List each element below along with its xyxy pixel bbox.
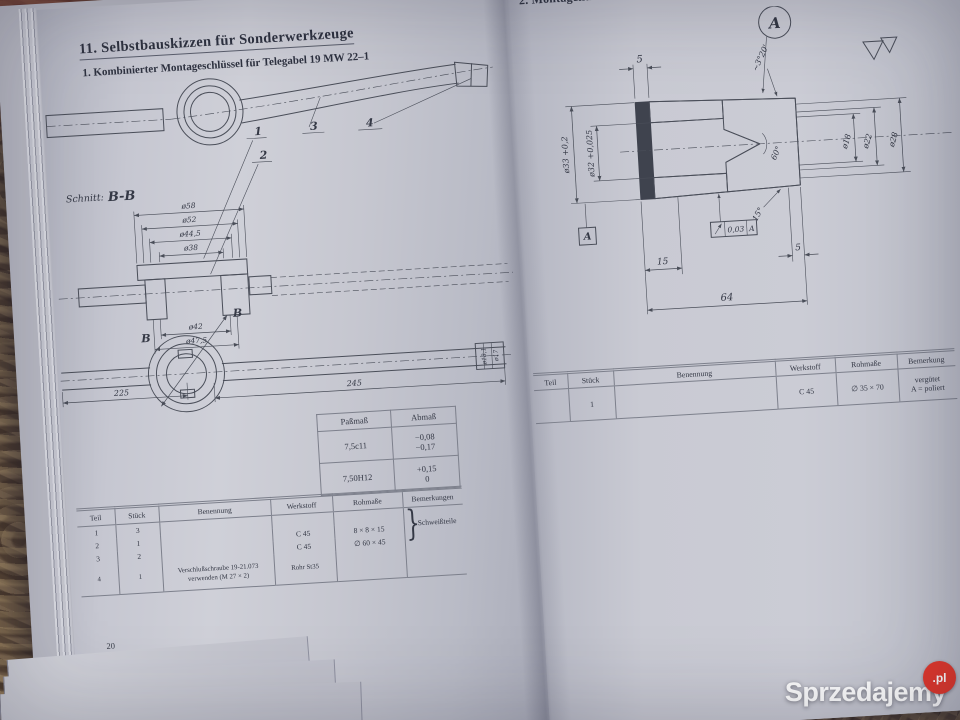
sleeve-section-view [617, 84, 954, 201]
cell-teil: 4 [80, 564, 120, 597]
right-page: 2. Montagehülse für Radialdichtring 19 M… [505, 0, 960, 720]
ab-lower: −0,17 [395, 439, 455, 453]
cell-stueck: 1 [118, 562, 164, 595]
callout-1: 1 [254, 125, 262, 138]
datum-box-label: A [582, 231, 592, 243]
section-label: Schnitt: [66, 192, 105, 205]
runout-datum-ref: A [748, 224, 756, 233]
cell-benennung: Verschlußschraube 19-21.073 verwenden (M… [162, 555, 276, 592]
section-marker-b-left: B [140, 332, 151, 346]
cell-stueck: 1 [568, 386, 616, 422]
cell-rohmasse: ∅ 35 × 70 [836, 369, 900, 406]
dim-end-dia-2: ø17 [493, 349, 501, 362]
dim-end-dia: ø18,1 [480, 347, 488, 365]
dim-d44-5: ø44,5 [178, 229, 201, 239]
dim-d38: ø38 [183, 243, 199, 253]
wrench-bottom-view: B B ø18,1 ø17 225 245 [57, 290, 515, 419]
watermark-badge: .pl [923, 661, 956, 694]
cell-werkstoff: Rohr St35 [273, 551, 337, 585]
dim-len-64: 64 [720, 292, 733, 304]
cell-rohmasse [335, 547, 407, 582]
datum-symbols: A 0,03 A [577, 192, 757, 245]
dim-top-width: 5 [636, 54, 643, 65]
fit-pass-value: 7,5c11 [318, 427, 394, 463]
callout-2: 2 [258, 149, 268, 163]
section-marker-b-top: B [232, 306, 243, 320]
page-number: 20 [106, 640, 115, 650]
dim-len-left: 225 [113, 388, 130, 398]
dim-taper-angle: ~3°20' [751, 43, 771, 72]
fit-tolerance-table: Paßmaß Abmaß 7,5c11 −0,08 −0,17 7,50H12 [316, 406, 461, 496]
watermark-tld-text: .pl [933, 671, 947, 685]
dim-d32: ø32 +0,025 [585, 130, 597, 179]
bemerkung-line-2: A = poliert [901, 382, 955, 394]
parts-table-left: Teil Stück Benennung Werkstoff Rohmaße B… [76, 486, 467, 598]
left-technical-drawing: 1 2 3 4 Schnitt: B-B [41, 58, 532, 445]
dim-d42: ø42 [187, 322, 203, 332]
photo-background: 11. Selbstbauskizzen für Sonderwerkzeuge… [0, 0, 960, 720]
dim-len-5: 5 [795, 243, 802, 253]
callout-4: 4 [366, 116, 374, 129]
sleeve-dimensions: 5 ø33 +0,2 ø32 +0,025 ~3°20' 60° 15° [555, 35, 918, 319]
dim-d18: ø18 [840, 133, 853, 151]
dim-len-right: 245 [345, 378, 362, 388]
watermark: Sprzedajemy .pl [785, 677, 946, 708]
dim-d28: ø28 [887, 131, 900, 149]
runout-value: 0,03 [727, 224, 744, 234]
dim-d33: ø33 +0,2 [560, 136, 571, 174]
section-view-b-b: Schnitt: B-B ø58 ø52 ø44,5 ø38 [53, 166, 517, 359]
detail-label: A [766, 14, 781, 33]
dim-len-15: 15 [657, 257, 669, 268]
cell-bemerkung: vergütet A = poliert [897, 366, 957, 402]
fit-ab-value: −0,08 −0,17 [392, 423, 458, 459]
dim-d22: ø22 [861, 133, 874, 151]
section-name: B-B [106, 188, 135, 205]
item-title-right: 2. Montagehülse für Radialdichtring 19 M… [518, 0, 777, 8]
left-page: 11. Selbstbauskizzen für Sonderwerkzeuge… [37, 0, 551, 720]
dim-d58: ø58 [180, 201, 196, 211]
dim-d52: ø52 [181, 215, 197, 225]
right-technical-drawing: A [512, 0, 960, 366]
dim-cone-angle: 60° [769, 145, 783, 162]
cell-werkstoff: C 45 [776, 373, 838, 410]
open-book: 11. Selbstbauskizzen für Sonderwerkzeuge… [0, 0, 960, 720]
watermark-brand-text: Sprzedajemy [785, 677, 946, 707]
part-callouts: 1 2 3 4 [194, 78, 482, 274]
cell-bemerkung [405, 544, 467, 578]
ab-lower: 0 [397, 471, 457, 485]
surface-finish-icon [863, 37, 898, 60]
